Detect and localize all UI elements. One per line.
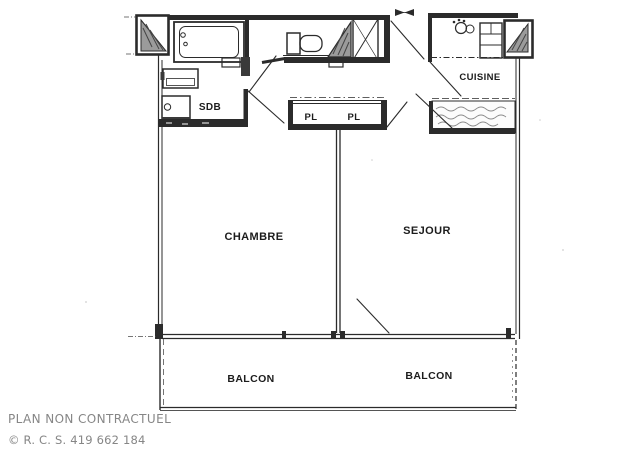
- reference-lines: [124, 17, 156, 337]
- partitions: [155, 130, 516, 411]
- top-wall-kitchen: [428, 13, 518, 18]
- floor-plan: SDB PL PL CUISINE CHAMBRE SEJOUR BALCON …: [0, 0, 640, 456]
- door-swings: [247, 21, 461, 333]
- wc-bottom-wall: [284, 57, 384, 63]
- scan-speckles: [85, 119, 564, 303]
- masonry-strip-bottom-wall: [432, 128, 515, 134]
- kitchen-left-wall: [428, 18, 432, 62]
- window-mullion-stubs: [155, 324, 511, 339]
- wc-room: [262, 19, 384, 67]
- room-label-cuisine: CUISINE: [459, 72, 500, 83]
- room-label-sejour: SEJOUR: [403, 225, 451, 237]
- washbasin-ledge: [167, 79, 195, 86]
- toilet-bowl: [300, 36, 322, 52]
- door-jamb-stub: [241, 57, 250, 76]
- room-label-balcon-right: BALCON: [405, 370, 452, 382]
- bathtub-drain: [184, 42, 188, 46]
- bath-wc-divider-wall: [245, 20, 249, 63]
- door-swing-chambre: [247, 90, 284, 123]
- floor-plan-page: SDB PL PL CUISINE CHAMBRE SEJOUR BALCON …: [0, 0, 640, 456]
- toilet-tank: [287, 33, 300, 54]
- room-label-balcon-left: BALCON: [227, 373, 274, 385]
- registration-text: © R. C. S. 419 662 184: [8, 433, 171, 447]
- kitchen-sink-bowl-1: [456, 23, 467, 34]
- north-arrow-icon: [395, 9, 414, 16]
- hatched-wall-triangle-right: [507, 24, 528, 52]
- kitchen-sink-bowl-2: [466, 25, 474, 33]
- disclaimer-text: PLAN NON CONTRACTUEL: [8, 412, 171, 426]
- footer: PLAN NON CONTRACTUEL © R. C. S. 419 662 …: [8, 412, 171, 447]
- room-label-chambre: CHAMBRE: [224, 231, 283, 243]
- wc-right-wall: [384, 15, 390, 63]
- washbasin-mount: [161, 72, 165, 80]
- closets: [288, 98, 387, 131]
- room-label-pl-right: PL: [348, 112, 361, 123]
- door-swing-kitchen: [430, 62, 461, 96]
- bathtub-faucet: [181, 33, 186, 38]
- door-swing-balcony: [357, 299, 389, 333]
- room-label-sdb: SDB: [199, 102, 221, 113]
- closet-bottom-wall: [288, 124, 387, 130]
- sdb-right-wall-lower: [244, 89, 249, 120]
- door-swing-entry: [391, 21, 424, 59]
- masonry-strip-left-wall: [429, 101, 433, 134]
- room-label-pl-left: PL: [305, 112, 318, 123]
- toilet-flush-knob: [164, 104, 170, 110]
- door-swing-hall-sejour: [387, 102, 407, 127]
- bathtub-basin: [180, 27, 239, 58]
